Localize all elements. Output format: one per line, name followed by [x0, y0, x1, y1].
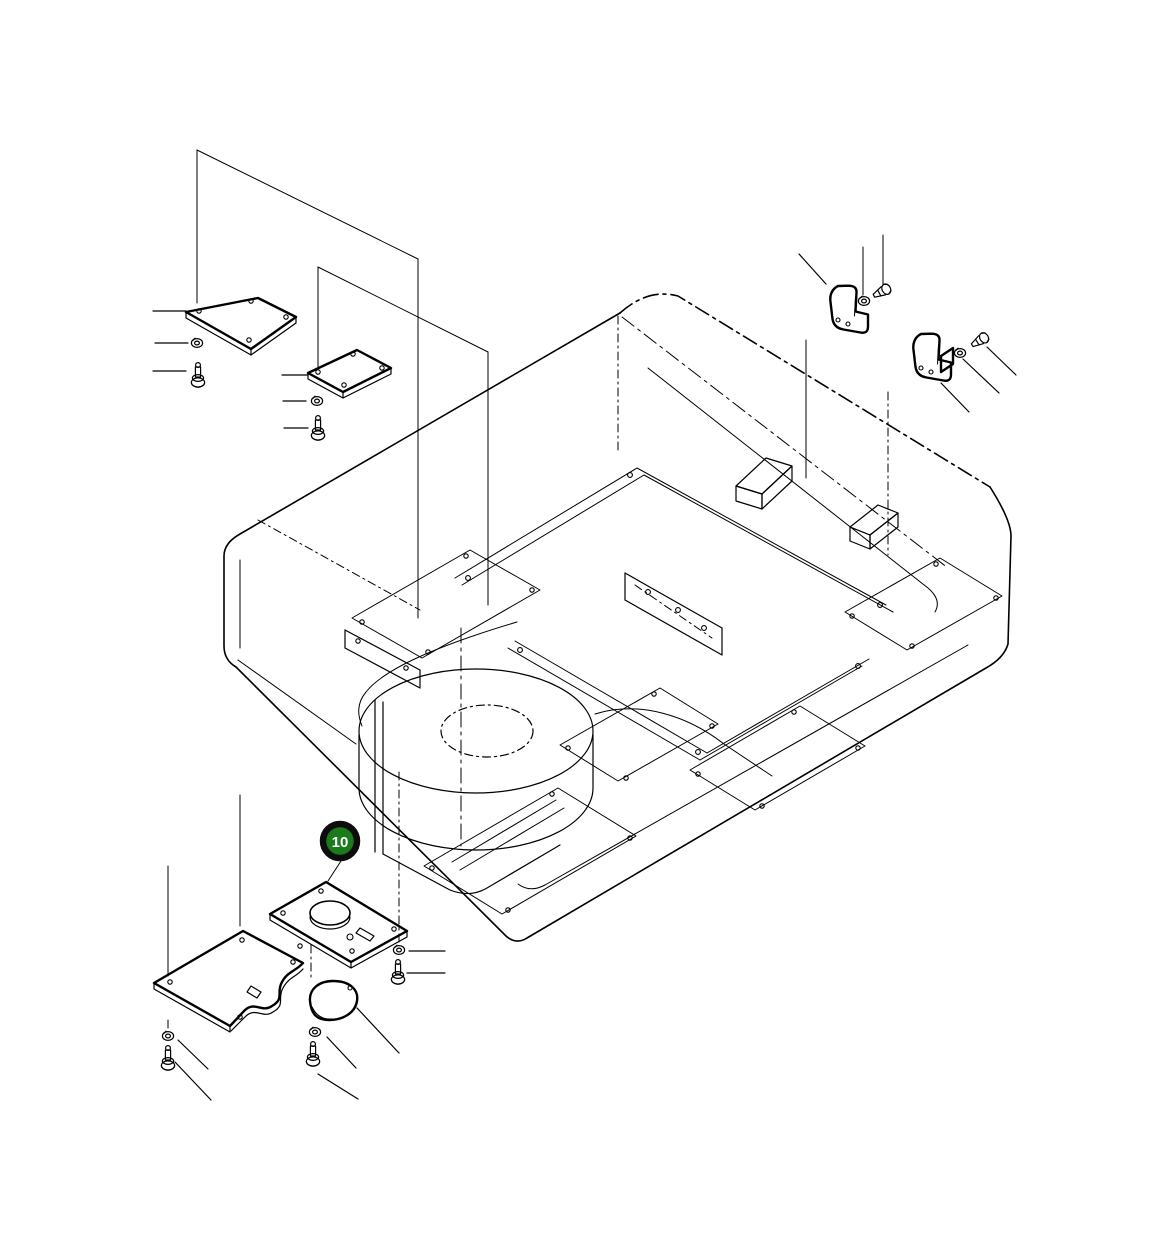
bolt: [311, 416, 324, 441]
cover-plate: [308, 350, 391, 398]
bolt: [871, 282, 892, 300]
crossmember-web: [625, 573, 722, 655]
leader-line: [987, 347, 1016, 375]
callout-label: 10: [332, 834, 349, 851]
leader-line: [175, 1062, 211, 1100]
callout-stem: [328, 861, 341, 881]
parts-diagram-canvas: 10: [0, 0, 1164, 1249]
washer: [191, 338, 202, 347]
leader-line: [799, 254, 826, 284]
leader-line: [941, 383, 969, 412]
bolt: [391, 960, 404, 985]
callout-balloon-10[interactable]: 10: [323, 824, 357, 881]
lower-left-cover-group: [154, 882, 445, 1100]
oval-cover: [310, 981, 357, 1020]
contoured-cover-plate: [154, 931, 303, 1032]
bolt: [161, 1046, 174, 1071]
leader-line: [318, 1074, 358, 1099]
leader-line: [327, 1037, 356, 1068]
leader-line: [178, 1040, 208, 1069]
deck-plates: [352, 550, 1002, 914]
washer: [162, 1031, 173, 1040]
washer: [393, 945, 404, 954]
bracket: [830, 286, 868, 333]
exploded-parts-diagram: 10: [0, 0, 1164, 1249]
plate-round-opening: [310, 901, 350, 925]
bearing-center-hole: [441, 705, 533, 757]
washer: [954, 348, 965, 357]
upper-left-cover-group: [153, 298, 391, 440]
cover-plate: [186, 298, 296, 355]
crossmember-box: [736, 458, 792, 509]
bolt: [191, 363, 204, 388]
crossmember-web: [345, 630, 420, 688]
upper-right-bracket-group: [799, 254, 1016, 412]
washer: [858, 296, 869, 305]
bolt: [306, 1042, 319, 1067]
leader-line: [357, 1008, 399, 1053]
swing-bearing: [359, 622, 772, 894]
bracket: [913, 334, 953, 381]
projection-lines: [168, 150, 888, 1028]
leader-line: [963, 359, 999, 393]
washer: [309, 1027, 320, 1036]
washer: [311, 396, 322, 405]
